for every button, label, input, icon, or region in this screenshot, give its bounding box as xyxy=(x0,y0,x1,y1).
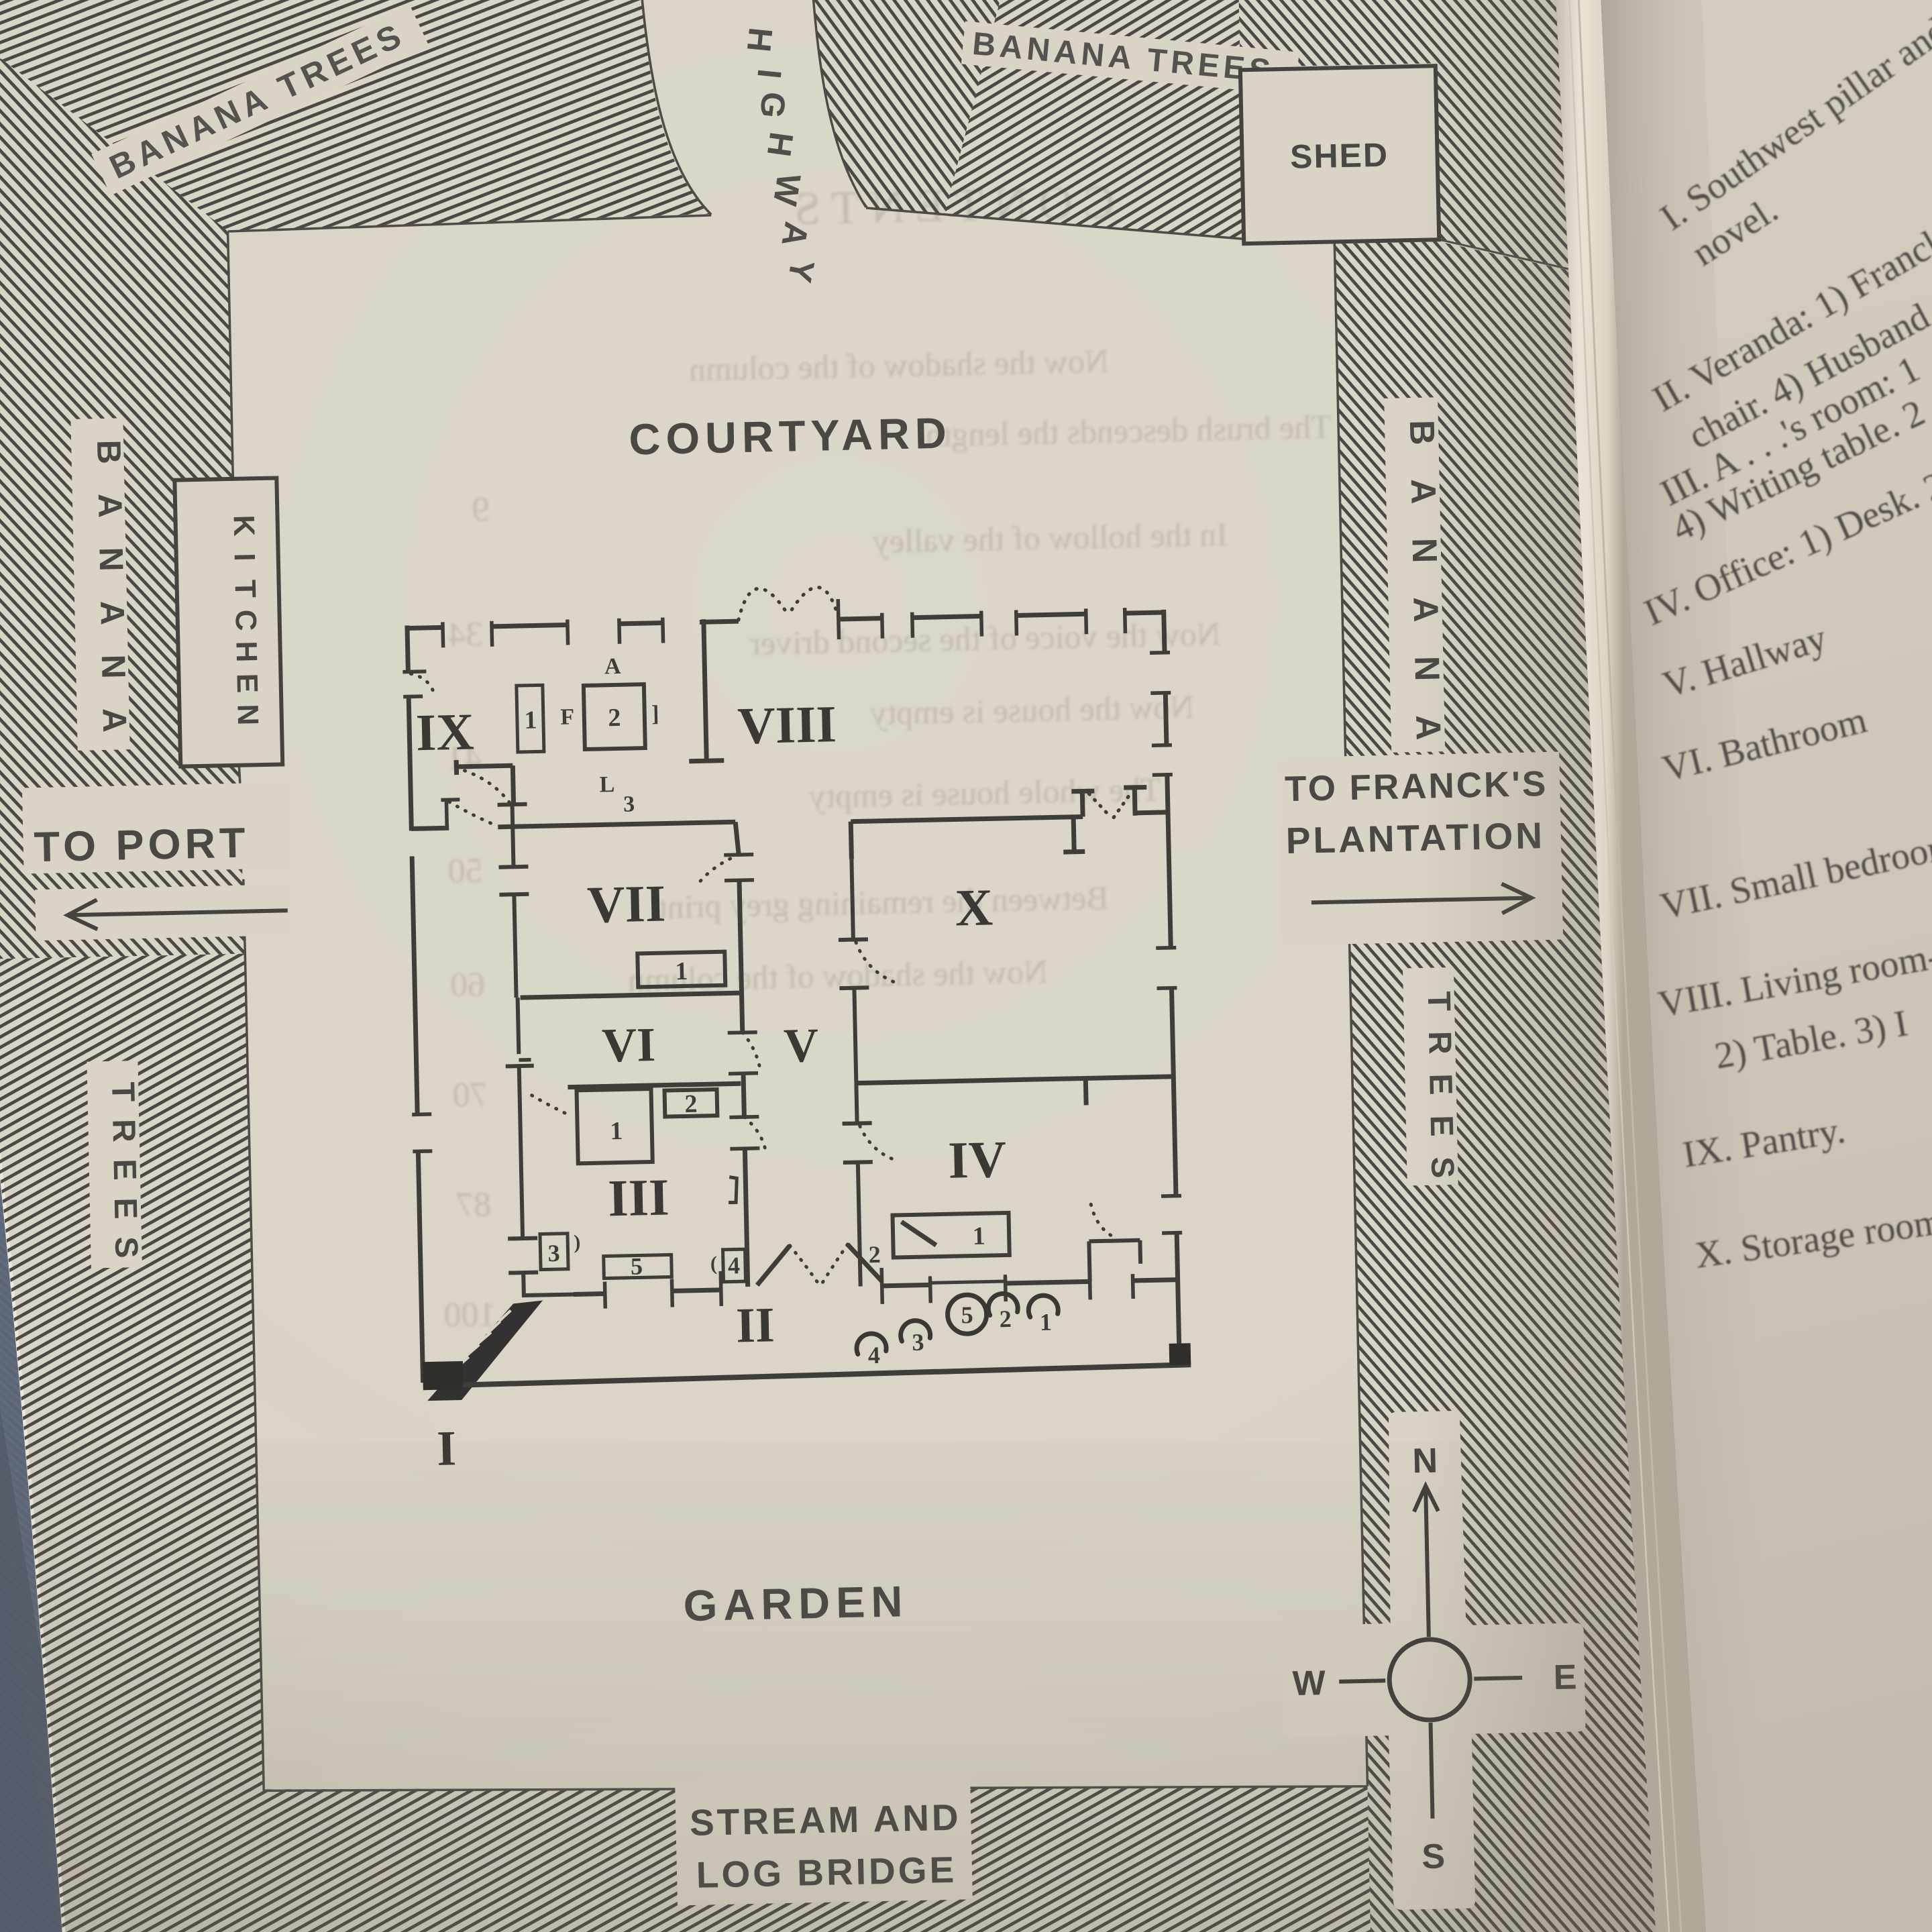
svg-text:H: H xyxy=(229,641,263,663)
svg-text:L: L xyxy=(599,772,614,797)
svg-text:4: 4 xyxy=(728,1252,741,1279)
svg-text:]: ] xyxy=(651,702,659,727)
svg-text:Now the house is empty: Now the house is empty xyxy=(870,688,1195,732)
svg-text:III: III xyxy=(607,1168,669,1228)
svg-text:F: F xyxy=(560,704,575,729)
svg-text:N: N xyxy=(92,547,130,572)
svg-text:87: 87 xyxy=(455,1185,491,1224)
svg-text:E: E xyxy=(107,1159,143,1181)
svg-text:VIII: VIII xyxy=(737,694,837,755)
svg-text:9: 9 xyxy=(472,490,490,529)
svg-text:B: B xyxy=(90,439,128,464)
svg-text:34: 34 xyxy=(448,615,484,654)
svg-text:1: 1 xyxy=(1039,1309,1052,1336)
svg-text:The whole house is empty: The whole house is empty xyxy=(808,770,1161,815)
svg-text:K: K xyxy=(227,515,260,537)
svg-text:E: E xyxy=(230,673,264,693)
svg-text:In the hollow of the valley: In the hollow of the valley xyxy=(872,515,1228,560)
svg-text:COURTYARD: COURTYARD xyxy=(629,408,953,464)
svg-text:IX: IX xyxy=(415,702,474,761)
svg-text:1: 1 xyxy=(972,1222,985,1250)
svg-text:100: 100 xyxy=(443,1295,496,1335)
svg-text:IV: IV xyxy=(948,1130,1007,1189)
svg-text:50: 50 xyxy=(447,851,483,890)
svg-text:A: A xyxy=(604,654,622,680)
svg-text:(: ( xyxy=(710,1252,718,1275)
svg-text:X: X xyxy=(955,877,994,936)
svg-text:70: 70 xyxy=(452,1075,488,1114)
svg-text:2: 2 xyxy=(999,1305,1012,1332)
svg-text:G: G xyxy=(753,90,793,120)
svg-text:R: R xyxy=(105,1119,142,1143)
svg-text:H: H xyxy=(740,25,780,54)
svg-text:A: A xyxy=(93,600,131,625)
svg-text:A: A xyxy=(95,708,133,733)
svg-text:T: T xyxy=(228,580,262,598)
svg-text:1: 1 xyxy=(675,957,688,985)
svg-text:SHED: SHED xyxy=(1290,136,1389,176)
svg-text:60: 60 xyxy=(450,965,486,1004)
svg-text:VII: VII xyxy=(586,874,666,934)
svg-text:3: 3 xyxy=(623,792,635,816)
svg-text:TO PORT: TO PORT xyxy=(34,819,250,871)
svg-text:2: 2 xyxy=(608,704,621,732)
svg-text:W: W xyxy=(766,171,808,209)
svg-text:1: 1 xyxy=(524,706,537,734)
svg-text:): ) xyxy=(574,1231,581,1253)
svg-text:N: N xyxy=(95,654,133,679)
svg-text:I: I xyxy=(228,553,261,561)
svg-text:T: T xyxy=(105,1081,141,1102)
svg-text:5: 5 xyxy=(631,1252,643,1279)
svg-text:VI: VI xyxy=(601,1018,656,1073)
svg-text:3: 3 xyxy=(912,1329,924,1356)
svg-text:5: 5 xyxy=(961,1301,973,1328)
svg-text:1: 1 xyxy=(610,1117,623,1145)
svg-text:S: S xyxy=(108,1236,144,1258)
svg-text:E: E xyxy=(107,1197,144,1220)
svg-text:3: 3 xyxy=(547,1240,560,1267)
svg-text:N: N xyxy=(231,704,264,726)
svg-text:2: 2 xyxy=(684,1090,698,1118)
svg-text:A: A xyxy=(91,493,129,518)
svg-text:II: II xyxy=(735,1297,775,1353)
svg-text:2: 2 xyxy=(868,1241,881,1268)
svg-text:H: H xyxy=(760,129,800,158)
svg-text:4: 4 xyxy=(867,1342,880,1368)
svg-text:V: V xyxy=(783,1018,819,1073)
svg-text:C: C xyxy=(229,609,262,631)
